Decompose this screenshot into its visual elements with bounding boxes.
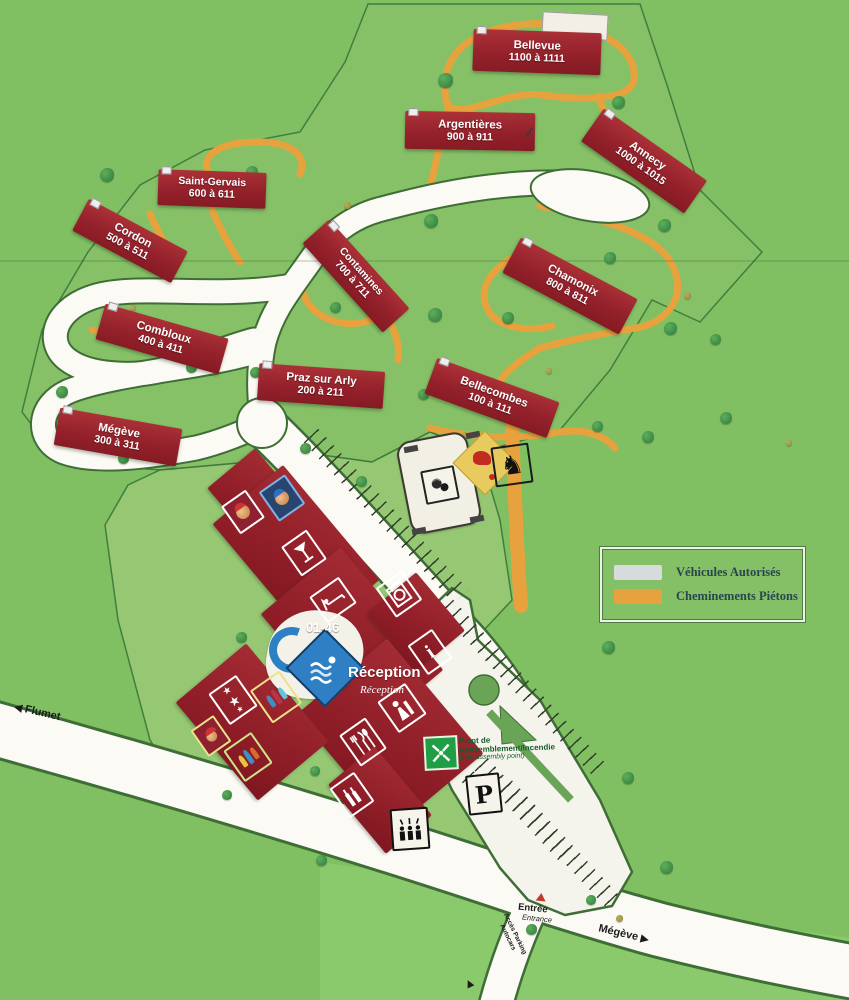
tree bbox=[604, 252, 616, 264]
building-range: 1100 à 1111 bbox=[509, 52, 565, 65]
receptionist-glyph bbox=[386, 691, 419, 725]
tree bbox=[664, 322, 677, 335]
tree bbox=[720, 412, 732, 424]
pony-riding-icon: ♞ bbox=[490, 443, 533, 488]
legend-row-pedestrian: Cheminements Piétons bbox=[602, 589, 803, 604]
tree bbox=[642, 431, 654, 443]
washing-machine-glyph bbox=[384, 578, 414, 609]
tree bbox=[300, 443, 311, 454]
building-saint-gervais: Saint-Gervais 600 à 611 bbox=[157, 169, 266, 209]
legend-row-vehicles: Véhicules Autorisés bbox=[602, 565, 803, 580]
bed-glyph bbox=[319, 587, 348, 614]
tree bbox=[424, 214, 438, 228]
legend: Véhicules Autorisés Cheminements Piétons bbox=[600, 547, 805, 622]
tree bbox=[612, 96, 625, 109]
shrub bbox=[786, 440, 792, 446]
resort-site-map: Bellevue 1100 à 1111 Argentières 900 à 9… bbox=[0, 0, 849, 1000]
vehicles-road-swatch bbox=[614, 565, 662, 580]
tree bbox=[56, 386, 68, 398]
mini-roundabout bbox=[237, 398, 287, 448]
building-argentieres: Argentières 900 à 911 bbox=[405, 111, 536, 151]
parking-roundabout-island bbox=[469, 675, 499, 705]
tree bbox=[586, 895, 596, 905]
tree bbox=[502, 312, 514, 324]
reception-sublabel: Réception bbox=[360, 684, 404, 696]
tree bbox=[100, 168, 114, 182]
boules-glyph bbox=[427, 473, 452, 497]
petanque-icon bbox=[420, 465, 460, 505]
tree bbox=[660, 861, 673, 874]
shrub bbox=[684, 292, 691, 299]
tree bbox=[356, 476, 367, 487]
check-mark: ✓ bbox=[523, 123, 537, 141]
reception-label: Réception bbox=[348, 664, 421, 681]
building-range: 200 à 211 bbox=[297, 385, 344, 400]
star-glyph: ★ bbox=[235, 704, 245, 714]
legend-label: Cheminements Piétons bbox=[676, 589, 798, 604]
arrow-left-icon: ◀ bbox=[13, 702, 23, 714]
bottles-glyph bbox=[338, 780, 367, 810]
tree bbox=[602, 641, 615, 654]
cartoon-face bbox=[233, 502, 252, 521]
tree bbox=[658, 219, 671, 232]
parking-glyph: P bbox=[474, 779, 495, 810]
cutlery-glyph bbox=[347, 726, 378, 759]
shrub bbox=[546, 368, 552, 374]
shrub bbox=[344, 202, 351, 209]
parking-icon: P bbox=[465, 772, 503, 815]
horse-glyph: ♞ bbox=[499, 451, 526, 480]
tree bbox=[316, 855, 327, 866]
info-glyph: i bbox=[421, 641, 439, 663]
swimmer-glyph bbox=[307, 650, 343, 686]
assembly-point-label: Point de Rassemblement/Incendie (Fire as… bbox=[459, 733, 560, 763]
entrance-triangle-icon bbox=[536, 892, 547, 901]
legend-label: Véhicules Autorisés bbox=[676, 565, 781, 580]
bus-stop-glyph bbox=[396, 814, 424, 844]
assembly-arrows-glyph bbox=[430, 742, 451, 763]
cartoon-face bbox=[272, 488, 291, 507]
tree bbox=[438, 73, 453, 88]
tree bbox=[526, 924, 537, 935]
shrub bbox=[616, 915, 623, 922]
cartoon-face bbox=[203, 728, 218, 743]
rooms-range-label: 01-46 bbox=[306, 620, 339, 635]
building-range: 600 à 611 bbox=[189, 188, 236, 201]
cocktail-glyph bbox=[290, 539, 317, 567]
tree bbox=[330, 302, 341, 313]
bus-stop-icon bbox=[390, 807, 431, 852]
tree bbox=[222, 790, 232, 800]
tree bbox=[428, 308, 442, 322]
tree bbox=[236, 632, 247, 643]
pedestrian-path-swatch bbox=[614, 589, 662, 604]
fire-assembly-point-icon bbox=[423, 735, 459, 771]
building-bellevue: Bellevue 1100 à 1111 bbox=[472, 29, 601, 75]
rooster-figure bbox=[473, 451, 491, 465]
tree bbox=[710, 334, 721, 345]
tree bbox=[622, 772, 634, 784]
tree bbox=[592, 421, 603, 432]
building-range: 900 à 911 bbox=[447, 131, 493, 143]
tree bbox=[310, 766, 320, 776]
